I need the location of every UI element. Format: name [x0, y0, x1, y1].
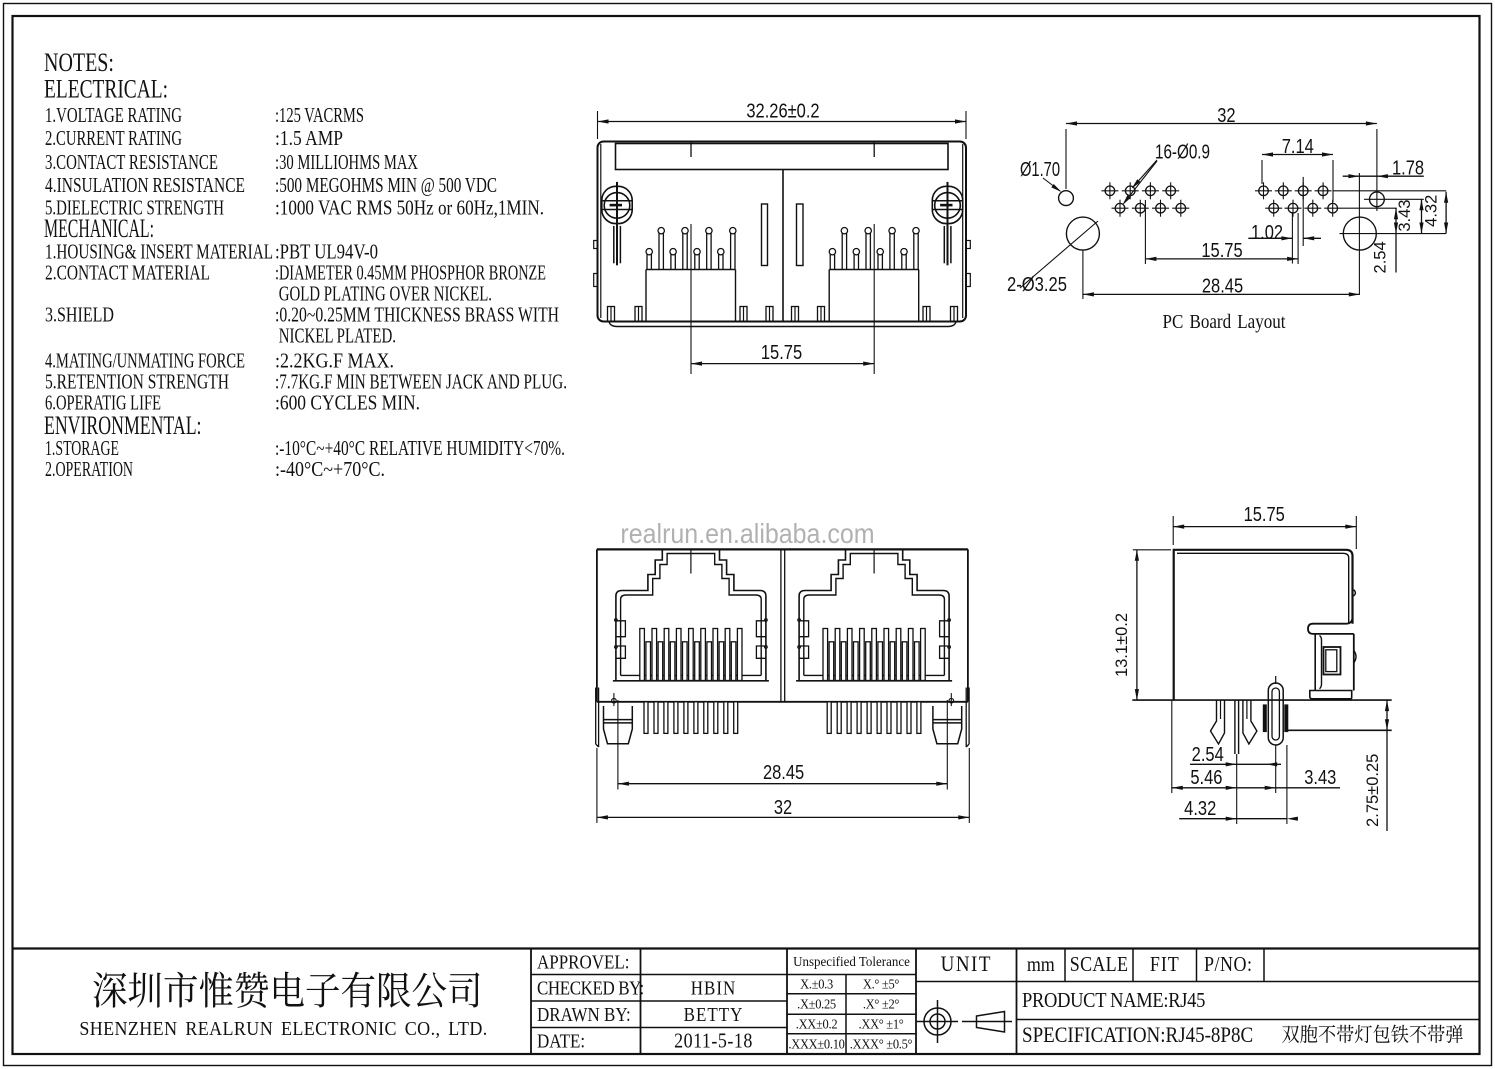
svg-text::600 CYCLES MIN.: :600 CYCLES MIN. — [275, 392, 420, 415]
svg-text:Ø1.70: Ø1.70 — [1020, 157, 1060, 180]
svg-text:15.75: 15.75 — [1244, 502, 1285, 525]
svg-text:.XXX° ±0.5°: .XXX° ±0.5° — [850, 1036, 913, 1052]
svg-text:.X° ±2°: .X° ±2° — [863, 996, 899, 1012]
svg-text:CHECKED BY:: CHECKED BY: — [537, 978, 644, 999]
svg-text:UNIT: UNIT — [941, 953, 992, 976]
svg-text::1.5 AMP: :1.5 AMP — [275, 128, 343, 151]
svg-text::-40°C~+70°C.: :-40°C~+70°C. — [275, 459, 385, 482]
svg-text::500 MEGOHMS MIN @ 500 VDC: :500 MEGOHMS MIN @ 500 VDC — [275, 175, 497, 198]
svg-text:3.CONTACT RESISTANCE: 3.CONTACT RESISTANCE — [45, 152, 218, 175]
svg-text::-10°C~+40°C RELATIVE HUMIDITY: :-10°C~+40°C RELATIVE HUMIDITY<70%. — [275, 438, 565, 461]
svg-text:SCALE: SCALE — [1070, 954, 1128, 976]
svg-text:MECHANICAL:: MECHANICAL: — [44, 215, 154, 244]
svg-text:28.45: 28.45 — [1202, 274, 1243, 297]
svg-text:2.CURRENT RATING: 2.CURRENT RATING — [45, 128, 182, 151]
svg-text:1.STORAGE: 1.STORAGE — [45, 438, 119, 461]
svg-text:4.MATING/UNMATING FORCE: 4.MATING/UNMATING FORCE — [45, 350, 245, 373]
svg-text:4.32: 4.32 — [1184, 796, 1216, 819]
svg-text::30 MILLIOHMS MAX: :30 MILLIOHMS MAX — [275, 152, 418, 175]
svg-text:5.RETENTION STRENGTH: 5.RETENTION STRENGTH — [45, 371, 229, 394]
svg-text:P/NO:: P/NO: — [1204, 954, 1252, 976]
svg-text:5.46: 5.46 — [1190, 765, 1222, 788]
svg-text:2.54: 2.54 — [1372, 241, 1390, 273]
svg-text::PBT UL94V-0: :PBT UL94V-0 — [275, 241, 378, 264]
svg-text:HBIN: HBIN — [691, 978, 737, 999]
svg-text:DATE:: DATE: — [537, 1030, 585, 1051]
svg-text:4.INSULATION RESISTANCE: 4.INSULATION RESISTANCE — [45, 175, 245, 198]
svg-text:1.02: 1.02 — [1251, 220, 1283, 243]
svg-text:.XX° ±1°: .XX° ±1° — [859, 1016, 904, 1032]
svg-text:16-Ø0.9: 16-Ø0.9 — [1155, 140, 1210, 163]
svg-text:NOTES:: NOTES: — [44, 49, 114, 78]
svg-text:3.43: 3.43 — [1396, 200, 1414, 232]
svg-text::DIAMETER 0.45MM PHOSPHOR BRON: :DIAMETER 0.45MM PHOSPHOR BRONZE — [275, 262, 546, 285]
svg-text::2.2KG.F MAX.: :2.2KG.F MAX. — [275, 350, 394, 373]
svg-text:ENVIRONMENTAL:: ENVIRONMENTAL: — [44, 412, 202, 441]
svg-text:32: 32 — [774, 795, 792, 818]
svg-text::7.7KG.F MIN BETWEEN JACK AND: :7.7KG.F MIN BETWEEN JACK AND PLUG. — [275, 371, 567, 394]
svg-text:2.CONTACT MATERIAL: 2.CONTACT MATERIAL — [45, 262, 210, 285]
svg-text:15.75: 15.75 — [761, 340, 802, 363]
svg-text:ELECTRICAL:: ELECTRICAL: — [44, 75, 168, 104]
svg-text::125 VACRMS: :125 VACRMS — [275, 105, 364, 128]
svg-text:SPECIFICATION:RJ45-8P8C: SPECIFICATION:RJ45-8P8C — [1022, 1024, 1253, 1047]
svg-text:3.43: 3.43 — [1304, 765, 1336, 788]
svg-text:13.1±0.2: 13.1±0.2 — [1113, 613, 1131, 677]
svg-text:X.° ±5°: X.° ±5° — [863, 976, 899, 992]
svg-text:2011-5-18: 2011-5-18 — [674, 1030, 753, 1052]
svg-text:BETTY: BETTY — [684, 1004, 744, 1025]
svg-text:PRODUCT NAME:RJ45: PRODUCT NAME:RJ45 — [1022, 989, 1205, 1012]
svg-text:4.32: 4.32 — [1423, 195, 1441, 227]
svg-text:2.OPERATION: 2.OPERATION — [45, 459, 133, 482]
svg-text:15.75: 15.75 — [1201, 238, 1242, 261]
svg-text:SHENZHEN REALRUN ELECTRONIC CO: SHENZHEN REALRUN ELECTRONIC CO., LTD. — [79, 1018, 487, 1040]
svg-text:.XX±0.2: .XX±0.2 — [796, 1016, 838, 1032]
svg-text:Unspecified Tolerance: Unspecified Tolerance — [793, 954, 910, 969]
svg-text:PC Board Layout: PC Board Layout — [1163, 311, 1287, 333]
svg-text::0.20~0.25MM THICKNESS BRASS W: :0.20~0.25MM THICKNESS BRASS WITH — [275, 304, 559, 327]
svg-text:mm: mm — [1027, 954, 1055, 976]
svg-text:28.45: 28.45 — [763, 760, 804, 783]
svg-text::1000 VAC RMS 50Hz or 60Hz,1MI: :1000 VAC RMS 50Hz or 60Hz,1MIN. — [275, 197, 544, 220]
svg-text:1.VOLTAGE RATING: 1.VOLTAGE RATING — [45, 105, 182, 128]
svg-text:2.75±0.25: 2.75±0.25 — [1364, 754, 1382, 827]
svg-text:X.±0.3: X.±0.3 — [800, 976, 834, 992]
svg-text:NICKEL PLATED.: NICKEL PLATED. — [275, 325, 396, 348]
svg-text:1.HOUSING& INSERT MATERIAL: 1.HOUSING& INSERT MATERIAL — [45, 241, 273, 264]
svg-text:2.54: 2.54 — [1192, 742, 1224, 765]
svg-text:APPROVEL:: APPROVEL: — [537, 951, 629, 972]
svg-text:1.78: 1.78 — [1392, 156, 1424, 179]
svg-text:DRAWN BY:: DRAWN BY: — [537, 1004, 631, 1025]
svg-text:realrun.en.alibaba.com: realrun.en.alibaba.com — [620, 518, 874, 549]
svg-text:3.SHIELD: 3.SHIELD — [45, 304, 114, 327]
svg-text:.X±0.25: .X±0.25 — [797, 996, 836, 1012]
svg-text:FIT: FIT — [1150, 954, 1180, 976]
svg-text:GOLD PLATING OVER NICKEL.: GOLD PLATING OVER NICKEL. — [275, 283, 492, 306]
svg-text:2-Ø3.25: 2-Ø3.25 — [1007, 272, 1067, 295]
svg-text:.XXX±0.10: .XXX±0.10 — [788, 1036, 845, 1052]
svg-text:32.26±0.2: 32.26±0.2 — [746, 99, 819, 122]
